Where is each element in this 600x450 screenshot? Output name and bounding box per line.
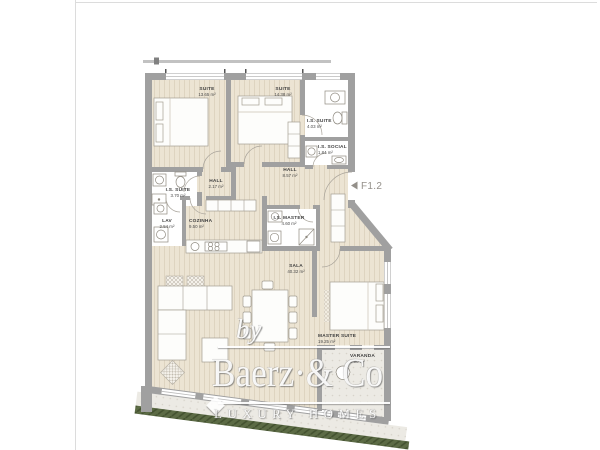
room-area-lav: 2.54 m²: [160, 224, 175, 229]
floorplan-page: SUITE 13.65 m² SUITE 14.38 m² I.S. SUITE…: [0, 0, 600, 450]
oven-icon: [247, 241, 260, 252]
room-area-sala: 40.32 m²: [287, 269, 305, 274]
bed-suite-1: [154, 98, 208, 146]
toilet-icon-social: [306, 146, 317, 157]
sink-icon-lav: [154, 203, 167, 214]
washbasin-icon-suite2: [325, 91, 345, 104]
dimension-ticks: [165, 69, 304, 73]
kitchen-sink-icon: [191, 243, 199, 251]
room-area-master-suite: 19.25 m²: [318, 339, 336, 344]
room-area-is-suite-2: 4.03 m²: [307, 124, 322, 129]
roof-edge-line: [143, 58, 331, 65]
room-area-hall-small: 2.17 m²: [209, 184, 224, 189]
floor-marker-f12: F1.2: [351, 181, 382, 192]
washer-icon-lav: [154, 227, 168, 242]
toilet-icon-suite2: [333, 112, 347, 124]
room-area-suite-1: 13.65 m²: [198, 92, 216, 97]
toilet-icon-suite1: [175, 172, 186, 188]
toilet-icon-master: [268, 231, 281, 244]
wardrobe-suite-2: [288, 122, 300, 158]
washbasin-icon-social: [332, 156, 346, 164]
kitchen-cabinets: [206, 200, 256, 211]
marker-label: F1.2: [361, 181, 382, 192]
room-area-cozinha: 9.50 m²: [189, 224, 204, 229]
room-area-is-suite-1: 3.70 m²: [171, 193, 186, 198]
shower-icon-master: [299, 229, 314, 245]
floorplan-drawing: SUITE 13.65 m² SUITE 14.38 m² I.S. SUITE…: [0, 0, 600, 450]
room-area-is-social: 1.84 m²: [318, 150, 333, 155]
bed-suite-2: [238, 96, 292, 144]
room-area-hall-main: 8.57 m²: [283, 173, 298, 178]
kitchen-counter: [186, 240, 262, 253]
washbasin-icon-suite1: [153, 174, 166, 186]
room-area-is-master: 4.60 m²: [282, 221, 297, 226]
room-area-suite-2: 14.38 m²: [274, 92, 292, 97]
stove-icon: [205, 242, 227, 251]
bed-master: [324, 282, 384, 330]
balcony-chair: [336, 366, 350, 380]
room-area-varanda: 8.90 m²: [350, 359, 365, 364]
wardrobe-corridor: [331, 194, 345, 242]
